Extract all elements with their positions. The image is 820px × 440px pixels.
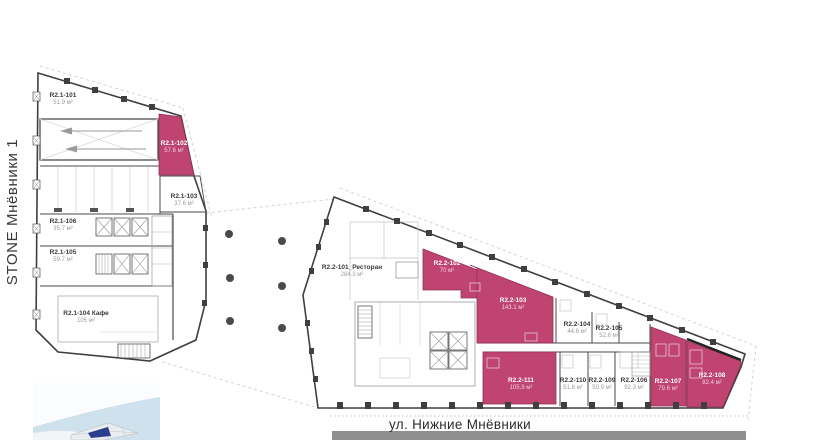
floorplan-drawing	[0, 0, 820, 440]
unit-region-r22-111[interactable]	[483, 352, 556, 404]
street-label: ул. Нижние Мнёвники	[330, 417, 590, 432]
project-title-vertical: STONE Мнёвники 1	[4, 122, 22, 302]
ramp	[40, 119, 158, 160]
building-r21-outline	[36, 73, 206, 361]
plaza-columns	[225, 230, 286, 332]
road-bar	[332, 431, 746, 440]
site-map-thumbnail	[33, 383, 160, 440]
unit-region-r22-107[interactable]	[651, 327, 686, 406]
building-r21	[33, 73, 208, 361]
floorplan-page: STONE Мнёвники 1 ул. Нижние Мнёвники R2.…	[0, 0, 820, 440]
building-r22	[303, 197, 745, 409]
unit-region-r21-102[interactable]	[159, 114, 194, 175]
